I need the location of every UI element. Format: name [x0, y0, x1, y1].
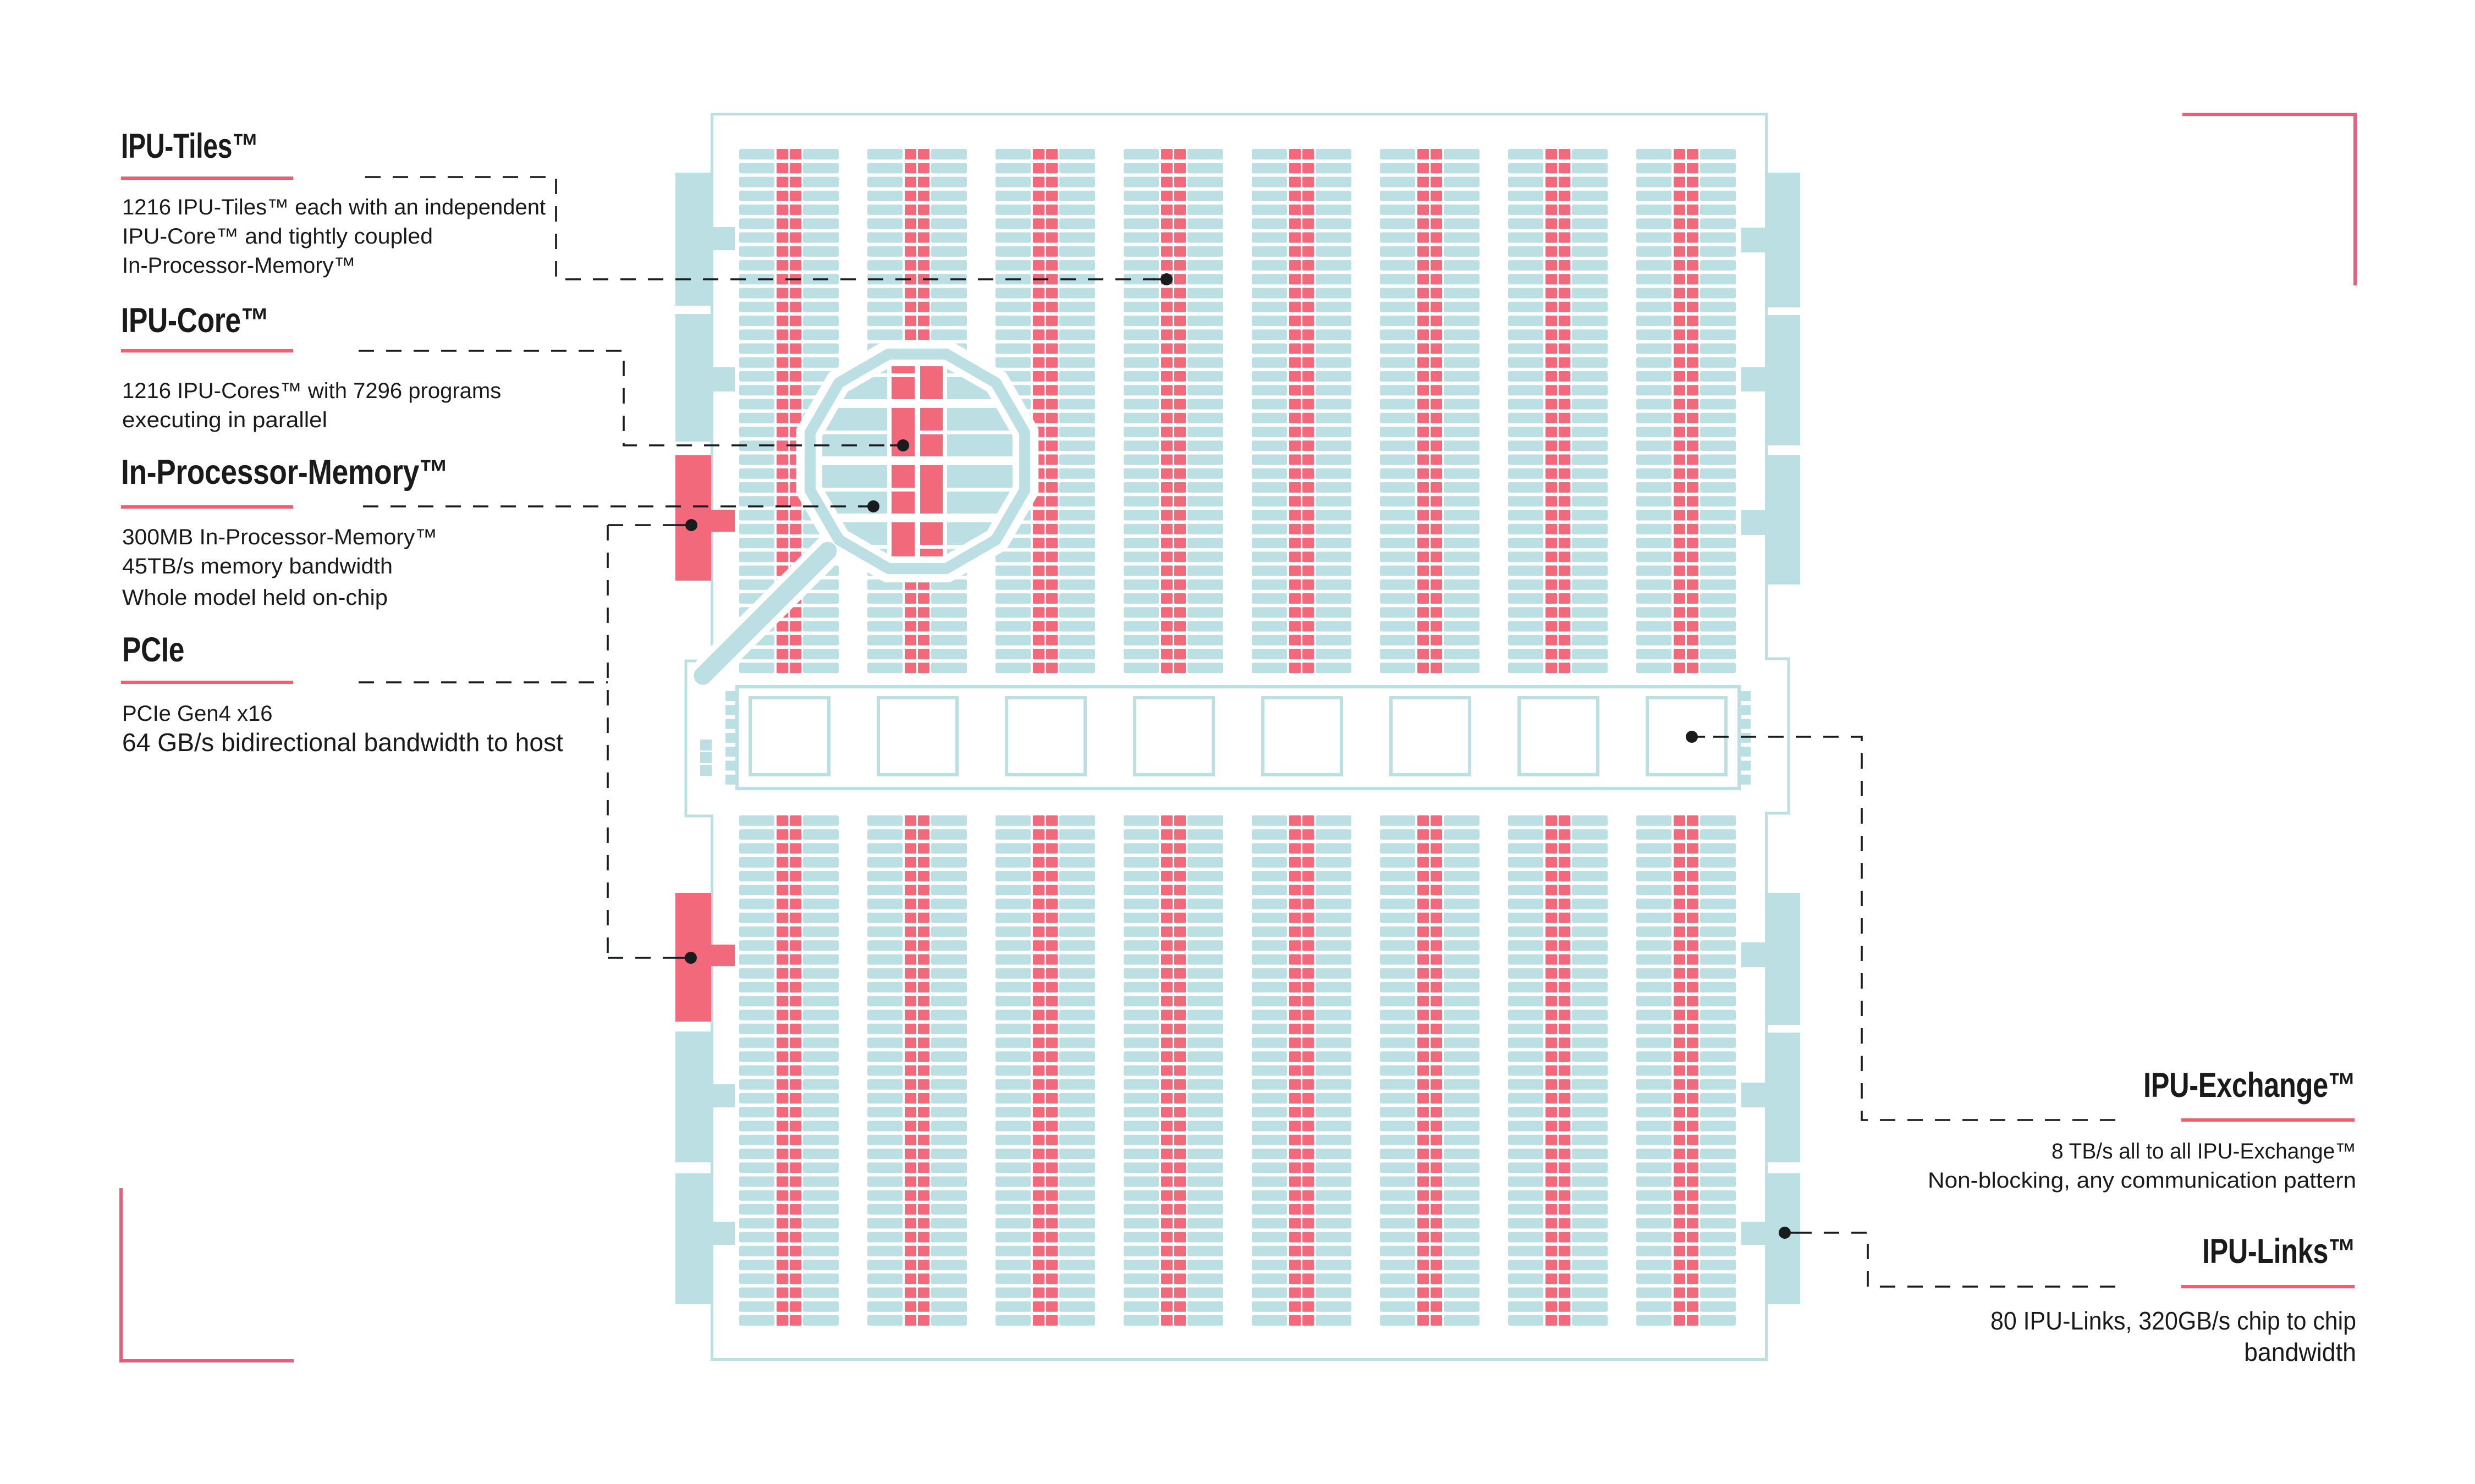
svg-text:Non-blocking, any communicatio: Non-blocking, any communication pattern [1928, 1168, 2356, 1193]
svg-text:1216 IPU-Cores™ with 7296 prog: 1216 IPU-Cores™ with 7296 programs [122, 379, 501, 403]
svg-text:IPU-Links™: IPU-Links™ [2202, 1232, 2356, 1271]
svg-text:64 GB/s bidirectional bandwidt: 64 GB/s bidirectional bandwidth to host [122, 728, 563, 757]
svg-text:In-Processor-Memory™: In-Processor-Memory™ [121, 453, 448, 492]
svg-text:PCIe: PCIe [122, 631, 184, 669]
svg-text:bandwidth: bandwidth [2244, 1338, 2356, 1366]
svg-text:IPU-Core™: IPU-Core™ [121, 301, 269, 340]
svg-text:Whole model held on-chip: Whole model held on-chip [122, 586, 388, 610]
svg-text:PCIe Gen4 x16: PCIe Gen4 x16 [122, 702, 273, 726]
svg-text:80 IPU-Links, 320GB/s chip to: 80 IPU-Links, 320GB/s chip to chip [1990, 1306, 2356, 1335]
svg-text:IPU-Exchange™: IPU-Exchange™ [2143, 1066, 2356, 1105]
svg-text:executing in parallel: executing in parallel [122, 408, 327, 432]
svg-text:1216 IPU-Tiles™ each with an i: 1216 IPU-Tiles™ each with an independent [122, 195, 546, 219]
svg-text:IPU-Core™ and tightly coupled: IPU-Core™ and tightly coupled [122, 224, 433, 249]
svg-text:In-Processor-Memory™: In-Processor-Memory™ [122, 253, 356, 278]
svg-text:8 TB/s all to all IPU-Exchange: 8 TB/s all to all IPU-Exchange™ [2051, 1139, 2356, 1163]
svg-text:IPU-Tiles™: IPU-Tiles™ [121, 127, 258, 165]
svg-text:300MB In-Processor-Memory™: 300MB In-Processor-Memory™ [122, 525, 437, 549]
svg-text:45TB/s memory bandwidth: 45TB/s memory bandwidth [122, 554, 393, 578]
